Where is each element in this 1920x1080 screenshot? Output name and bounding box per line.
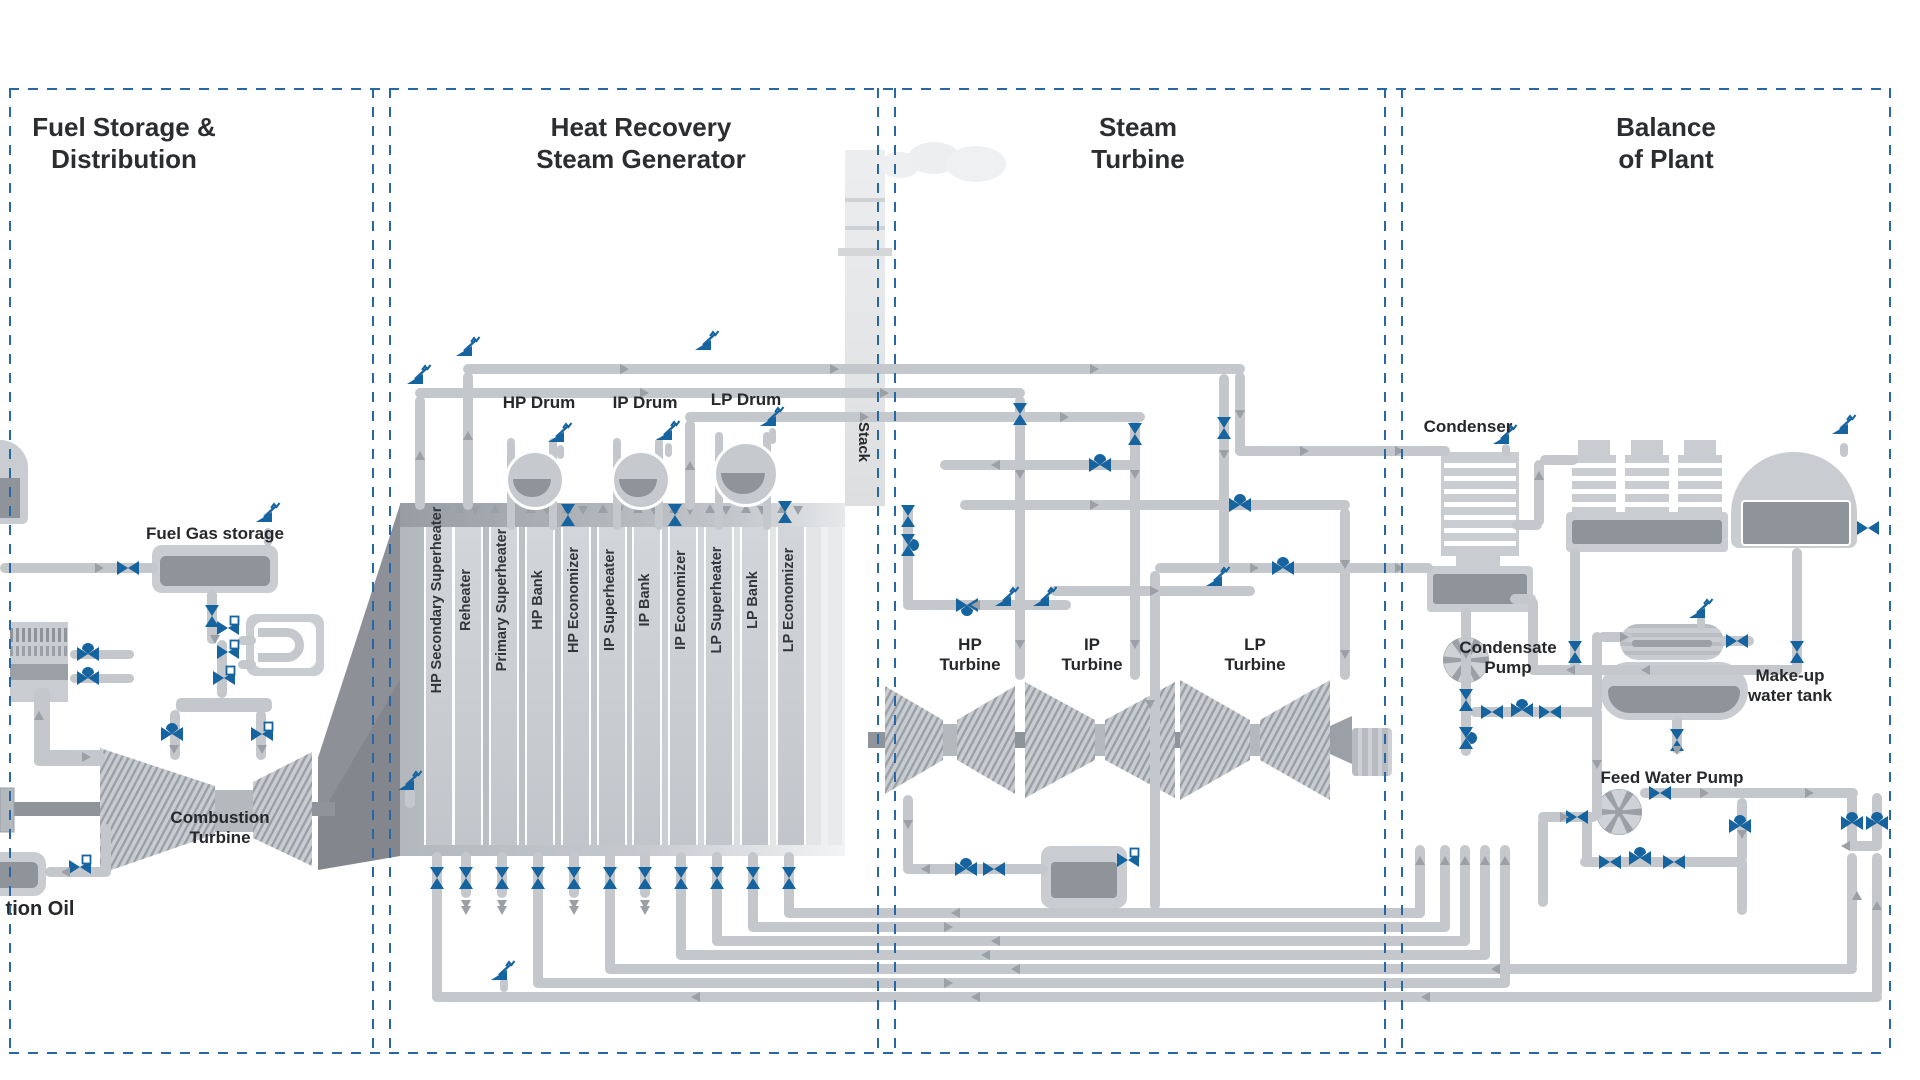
flow-arrow-icon bbox=[463, 431, 473, 440]
section-border bbox=[389, 88, 391, 1052]
pipe-segment bbox=[676, 950, 1490, 960]
globe-valve-icon bbox=[953, 856, 979, 882]
flow-arrow-icon bbox=[497, 906, 507, 915]
pipe-segment bbox=[1538, 817, 1548, 907]
flow-arrow-icon bbox=[1015, 640, 1025, 649]
gate-valve-icon bbox=[597, 865, 623, 891]
flow-arrow-icon bbox=[61, 867, 70, 877]
pipe-segment bbox=[1534, 460, 1544, 526]
pipe-segment bbox=[784, 908, 1425, 918]
cooling-tower-cap bbox=[1684, 440, 1716, 456]
flow-arrow-icon bbox=[95, 563, 104, 573]
flow-arrow-icon bbox=[1011, 964, 1020, 974]
relief-valve-icon bbox=[404, 361, 434, 391]
flow-arrow-icon bbox=[1737, 830, 1747, 839]
pipe-segment bbox=[101, 824, 111, 877]
flow-arrow-icon bbox=[880, 388, 889, 398]
globe-valve-icon bbox=[1087, 452, 1113, 478]
pipe-segment bbox=[712, 936, 1470, 946]
globe-valve-icon bbox=[1627, 845, 1653, 871]
flow-arrow-icon bbox=[1300, 446, 1309, 456]
pipe-segment bbox=[685, 412, 1145, 422]
pipe-segment bbox=[748, 852, 758, 932]
pipe-segment bbox=[1540, 455, 1578, 465]
fuel-filter-hatch bbox=[10, 646, 68, 656]
hrsg-column-label: HP Bank bbox=[530, 570, 546, 629]
flow-arrow-icon bbox=[1852, 891, 1862, 900]
gate-valve-icon bbox=[740, 865, 766, 891]
flow-arrow-icon bbox=[705, 504, 715, 513]
gate-valve-icon bbox=[895, 503, 921, 529]
hrsg-column-label: HP Economizer bbox=[566, 547, 582, 653]
globe-valve-icon bbox=[1453, 725, 1479, 751]
gate-valve-icon bbox=[704, 865, 730, 891]
flow-arrow-icon bbox=[415, 451, 425, 460]
flow-arrow-icon bbox=[1090, 500, 1099, 510]
flow-arrow-icon bbox=[1700, 788, 1709, 798]
globe-valve-icon bbox=[75, 665, 101, 691]
flow-arrow-icon bbox=[691, 992, 700, 1002]
check-valve-icon bbox=[1115, 847, 1141, 873]
section-header-fuel-storage: Fuel Storage & Distribution bbox=[0, 112, 284, 175]
gate-valve-icon bbox=[1537, 699, 1563, 725]
generator bbox=[1352, 728, 1392, 776]
gate-valve-icon bbox=[772, 499, 798, 525]
relief-valve-icon bbox=[1829, 411, 1859, 441]
hrsg-column-label: LP Economizer bbox=[781, 548, 797, 652]
flow-arrow-icon bbox=[210, 635, 220, 644]
flow-arrow-icon bbox=[598, 504, 608, 513]
cooling-tower-cell bbox=[1625, 455, 1669, 513]
pipe-segment bbox=[605, 964, 1857, 974]
flow-arrow-icon bbox=[1841, 841, 1850, 851]
ip-turbine-blades bbox=[1105, 682, 1175, 798]
globe-valve-icon bbox=[1864, 810, 1890, 836]
pipe-segment bbox=[1872, 853, 1882, 997]
relief-valve-icon bbox=[653, 417, 683, 447]
label-combustion-turbine: Combustion Turbine bbox=[170, 808, 269, 848]
flow-arrow-icon bbox=[1534, 471, 1544, 480]
flow-arrow-icon bbox=[461, 906, 471, 915]
flow-arrow-icon bbox=[1500, 856, 1510, 865]
section-header-hrsg: Heat Recovery Steam Generator bbox=[481, 112, 801, 175]
pipe-segment bbox=[1847, 841, 1882, 851]
gate-valve-icon bbox=[489, 865, 515, 891]
oil-tank-level bbox=[0, 862, 38, 888]
flow-arrow-icon bbox=[971, 600, 980, 610]
pipe-segment bbox=[1235, 446, 1450, 456]
hrsg-pale-column bbox=[805, 527, 821, 845]
flow-arrow-icon bbox=[1130, 470, 1140, 479]
stack-flange bbox=[838, 248, 892, 256]
flow-arrow-icon bbox=[490, 504, 500, 513]
power-plant-process-diagram: HP Secondary SuperheaterReheaterPrimary … bbox=[0, 0, 1920, 1080]
turbine-exhaust-cone bbox=[1330, 716, 1352, 764]
flow-arrow-icon bbox=[441, 506, 451, 515]
flow-arrow-icon bbox=[1235, 410, 1245, 419]
hrsg-column-label: IP Bank bbox=[637, 574, 653, 627]
hrsg-column-label: LP Superheater bbox=[709, 547, 725, 654]
flow-arrow-icon bbox=[1415, 856, 1425, 865]
relief-valve-icon bbox=[1203, 563, 1233, 593]
gate-valve-icon bbox=[1724, 628, 1750, 654]
relief-valve-icon bbox=[545, 419, 575, 449]
pipe-segment bbox=[534, 978, 1510, 988]
flow-arrow-icon bbox=[1480, 856, 1490, 865]
label-ip-turbine: IP Turbine bbox=[1061, 635, 1122, 675]
globe-valve-icon bbox=[1227, 492, 1253, 518]
blowdown-tank-level bbox=[1051, 862, 1117, 898]
cooling-tower-basin-water bbox=[1572, 520, 1722, 544]
flow-arrow-icon bbox=[903, 820, 913, 829]
flow-arrow-icon bbox=[1641, 665, 1650, 675]
pipe-segment bbox=[1592, 632, 1602, 712]
section-border bbox=[877, 88, 879, 1052]
water-storage-tank-level bbox=[1741, 500, 1851, 546]
gate-valve-icon bbox=[525, 865, 551, 891]
flow-arrow-icon bbox=[1460, 856, 1470, 865]
pipe-segment bbox=[960, 500, 1350, 510]
flow-arrow-icon bbox=[620, 364, 629, 374]
section-border bbox=[9, 1052, 1889, 1054]
section-border bbox=[372, 88, 374, 1052]
flow-arrow-icon bbox=[1130, 640, 1140, 649]
flow-arrow-icon bbox=[569, 906, 579, 915]
relief-valve-icon bbox=[692, 327, 722, 357]
makeup-water-tank-level bbox=[1608, 686, 1740, 713]
cooling-tower-cell bbox=[1678, 455, 1722, 513]
section-header-steam-turbine: Steam Turbine bbox=[978, 112, 1298, 175]
flow-arrow-icon bbox=[1340, 650, 1350, 659]
gate-valve-icon bbox=[561, 865, 587, 891]
section-border bbox=[1401, 88, 1403, 1052]
turbine-hub bbox=[1250, 724, 1260, 756]
gate-valve-icon bbox=[1122, 421, 1148, 447]
relief-valve-icon bbox=[1030, 583, 1060, 613]
flow-arrow-icon bbox=[34, 711, 44, 720]
flow-arrow-icon bbox=[1015, 470, 1025, 479]
pipe-segment bbox=[1510, 594, 1536, 604]
gate-valve-icon bbox=[1597, 849, 1623, 875]
flow-arrow-icon bbox=[1145, 700, 1155, 709]
flow-arrow-icon bbox=[685, 461, 695, 470]
pipe-segment bbox=[1219, 374, 1229, 570]
gate-valve-icon bbox=[1855, 515, 1881, 541]
gate-valve-icon bbox=[1479, 699, 1505, 725]
gate-valve-icon bbox=[1211, 415, 1237, 441]
lp-turbine-blades bbox=[1260, 680, 1330, 800]
relief-valve-icon bbox=[992, 583, 1022, 613]
pipe-segment bbox=[34, 750, 104, 766]
label-condenser: Condenser bbox=[1424, 417, 1513, 437]
gate-valve-icon bbox=[981, 856, 1007, 882]
check-valve-icon bbox=[249, 721, 275, 747]
gate-valve-icon bbox=[1007, 401, 1033, 427]
gate-valve-icon bbox=[555, 502, 581, 528]
label-hp-drum: HP Drum bbox=[503, 393, 575, 413]
globe-valve-icon bbox=[75, 641, 101, 667]
flow-arrow-icon bbox=[1090, 364, 1099, 374]
pipe-segment bbox=[1840, 443, 1848, 457]
gate-valve-icon bbox=[1562, 639, 1588, 665]
flow-arrow-icon bbox=[971, 992, 980, 1002]
lp-turbine-blades bbox=[1180, 680, 1250, 800]
gate-valve-icon bbox=[453, 865, 479, 891]
label-feed-water-pump: Feed Water Pump bbox=[1601, 768, 1744, 788]
flow-arrow-icon bbox=[169, 745, 179, 754]
cooling-tower-cap bbox=[1631, 440, 1663, 456]
flow-arrow-icon bbox=[1219, 450, 1229, 459]
gate-valve-icon bbox=[662, 502, 688, 528]
label-fuel-gas-storage: Fuel Gas storage bbox=[146, 524, 284, 544]
hrsg-column-label: Reheater bbox=[458, 569, 474, 631]
flow-arrow-icon bbox=[1421, 992, 1430, 1002]
flow-arrow-icon bbox=[1340, 560, 1350, 569]
flow-arrow-icon bbox=[1491, 964, 1500, 974]
check-valve-icon bbox=[67, 854, 93, 880]
hrsg-column-label: IP Economizer bbox=[673, 550, 689, 650]
flow-arrow-icon bbox=[1060, 412, 1069, 422]
hrsg-column-label: IP Superheater bbox=[602, 549, 618, 651]
flow-arrow-icon bbox=[944, 978, 953, 988]
gate-valve-icon bbox=[776, 865, 802, 891]
stack-band bbox=[845, 226, 885, 230]
flow-arrow-icon bbox=[951, 908, 960, 918]
pipe-segment bbox=[1737, 857, 1747, 915]
globe-valve-icon bbox=[1509, 697, 1535, 723]
cooling-tower-cell bbox=[1572, 455, 1616, 513]
pipe-segment bbox=[1150, 571, 1160, 910]
pipe-segment bbox=[432, 992, 1882, 1002]
label-lp-drum: LP Drum bbox=[711, 390, 782, 410]
flow-arrow-icon bbox=[1560, 812, 1569, 822]
label-oil: tion Oil bbox=[6, 898, 75, 922]
turbine-hub bbox=[943, 724, 957, 756]
relief-valve-icon bbox=[1686, 595, 1716, 625]
globe-valve-icon bbox=[159, 721, 185, 747]
flow-arrow-icon bbox=[1672, 746, 1682, 755]
section-border bbox=[894, 88, 896, 1052]
label-lp-turbine: LP Turbine bbox=[1224, 635, 1285, 675]
ip-turbine-blades bbox=[1025, 682, 1095, 798]
condenser bbox=[1441, 452, 1519, 556]
flow-arrow-icon bbox=[1440, 856, 1450, 865]
globe-valve-icon bbox=[1270, 555, 1296, 581]
flow-arrow-icon bbox=[425, 504, 435, 513]
flow-arrow-icon bbox=[82, 752, 91, 762]
flow-arrow-icon bbox=[991, 936, 1000, 946]
pipe-segment bbox=[1500, 845, 1510, 988]
pipe-segment bbox=[463, 364, 1245, 374]
flow-arrow-icon bbox=[1566, 665, 1575, 675]
flow-arrow-icon bbox=[640, 906, 650, 915]
hrsg-pale-column bbox=[828, 527, 842, 845]
fuel-gas-heater-coil-u bbox=[258, 628, 304, 662]
ct-generator bbox=[0, 788, 14, 832]
flow-arrow-icon bbox=[1805, 788, 1814, 798]
pipe-segment bbox=[463, 372, 473, 510]
flow-arrow-icon bbox=[257, 745, 267, 754]
label-hp-turbine: HP Turbine bbox=[939, 635, 1000, 675]
section-border bbox=[9, 88, 1889, 90]
fuel-filter-hatch bbox=[10, 628, 68, 642]
pipe-segment bbox=[748, 922, 1450, 932]
pipe-segment bbox=[1015, 396, 1025, 680]
globe-valve-icon bbox=[895, 532, 921, 558]
flow-arrow-icon bbox=[1872, 901, 1882, 910]
relief-valve-icon bbox=[488, 957, 518, 987]
flow-arrow-icon bbox=[860, 412, 869, 422]
hrsg-column-label: HP Secondary Superheater bbox=[429, 507, 445, 694]
hrsg-column-label: Primary Superheater bbox=[494, 529, 510, 672]
flow-arrow-icon bbox=[1620, 632, 1629, 642]
flow-arrow-icon bbox=[1150, 586, 1159, 596]
deaerator-band bbox=[1632, 640, 1712, 647]
flow-arrow-icon bbox=[1250, 563, 1259, 573]
pipe-segment bbox=[1847, 853, 1857, 969]
label-condensate-pump: Condensate Pump bbox=[1459, 638, 1556, 678]
turbine-hub bbox=[1095, 724, 1105, 756]
section-border bbox=[1384, 88, 1386, 1052]
gate-valve-icon bbox=[115, 555, 141, 581]
relief-valve-icon bbox=[395, 767, 425, 797]
relief-valve-icon bbox=[453, 333, 483, 363]
gate-valve-icon bbox=[1661, 849, 1687, 875]
section-header-balance-of-plant: Balance of Plant bbox=[1506, 112, 1826, 175]
stack-band bbox=[845, 198, 885, 202]
flow-arrow-icon bbox=[981, 950, 990, 960]
gate-valve-icon bbox=[1784, 639, 1810, 665]
gate-valve-icon bbox=[632, 865, 658, 891]
flow-arrow-icon bbox=[991, 460, 1000, 470]
label-ip-drum: IP Drum bbox=[613, 393, 678, 413]
cooling-tower-cap bbox=[1578, 440, 1610, 456]
flow-arrow-icon bbox=[944, 922, 953, 932]
label-makeup-water-tank: Make-up water tank bbox=[1748, 666, 1832, 706]
section-border bbox=[1889, 88, 1891, 1052]
fuel-filter-band bbox=[10, 664, 68, 680]
section-border bbox=[9, 88, 11, 1052]
gate-valve-icon bbox=[1453, 687, 1479, 713]
label-stack: Stack bbox=[854, 422, 872, 462]
hp-turbine-blades bbox=[957, 686, 1015, 794]
globe-valve-icon bbox=[1839, 810, 1865, 836]
flow-arrow-icon bbox=[921, 864, 930, 874]
hrsg-column-label: LP Bank bbox=[745, 571, 761, 629]
gate-valve-icon bbox=[668, 865, 694, 891]
flow-arrow-icon bbox=[830, 364, 839, 374]
gate-valve-icon bbox=[424, 865, 450, 891]
pipe-segment bbox=[903, 795, 913, 871]
fuel-gas-tank-level bbox=[160, 556, 270, 586]
check-valve-icon bbox=[211, 665, 237, 691]
